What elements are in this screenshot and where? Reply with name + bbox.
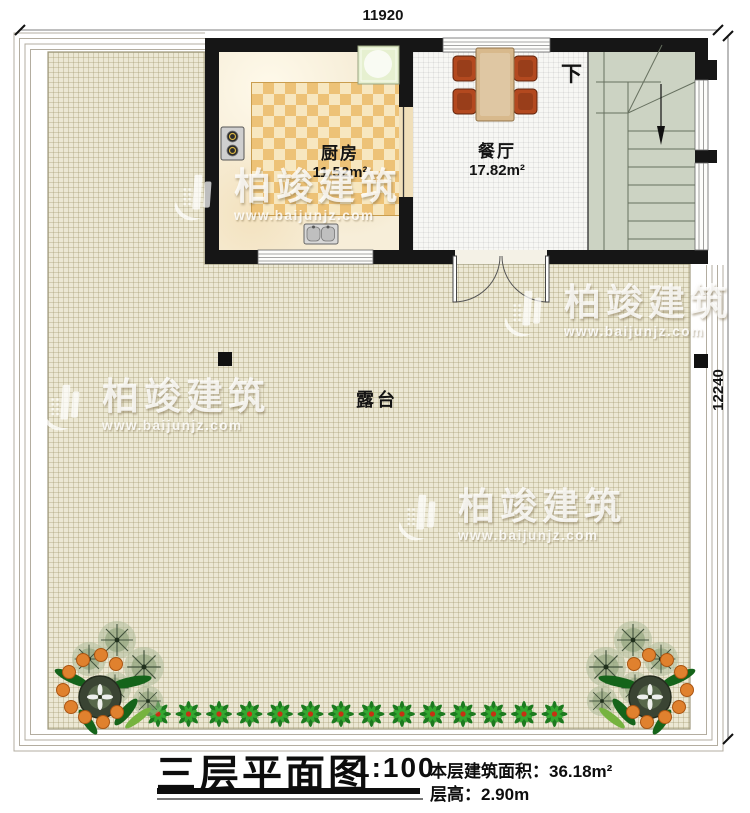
corner-shrub-right xyxy=(586,621,697,737)
stairs-direction-label: 下 xyxy=(561,58,582,88)
window-stair-east-upper xyxy=(695,80,708,150)
floor-height-value: 2.90m xyxy=(481,785,529,804)
floor-area-row: 本层建筑面积：36.18m² xyxy=(430,760,612,783)
stairs-down-arrow xyxy=(657,84,665,145)
drawing-scale: 1:100 xyxy=(354,752,436,784)
sink xyxy=(304,224,338,244)
column-left xyxy=(218,352,232,366)
stove xyxy=(221,127,244,160)
corner-shrub-left xyxy=(53,621,164,737)
floor-area-label: 本层建筑面积： xyxy=(430,762,549,781)
dining-table-set xyxy=(453,48,537,121)
window-stair-east-lower xyxy=(695,163,708,250)
title-underline-thick xyxy=(157,788,420,794)
plant-row xyxy=(145,701,568,727)
title-info: 本层建筑面积：36.18m² 层高：2.90m xyxy=(430,760,612,806)
terrace-name: 露台 xyxy=(327,386,427,412)
kitchen-name: 厨房 xyxy=(265,143,415,164)
stairs xyxy=(588,45,695,250)
kitchen-label: 厨房 11.52m² xyxy=(265,143,415,183)
floor-area-value: 36.18m² xyxy=(549,762,612,781)
column-right xyxy=(694,354,708,368)
floor-height-row: 层高：2.90m xyxy=(430,783,612,806)
kitchen-area: 11.52m² xyxy=(265,164,415,183)
refrigerator xyxy=(358,46,399,84)
dining-area: 17.82m² xyxy=(422,162,572,181)
dining-name: 餐厅 xyxy=(422,141,572,162)
window-kitchen-south xyxy=(258,250,373,264)
floorplan-page: 11920 12240 厨房 11.52m² 餐厅 17.82m² 下 露台 xyxy=(0,0,750,813)
title-underline-thin xyxy=(157,798,423,800)
dining-label: 餐厅 17.82m² xyxy=(422,141,572,181)
french-door xyxy=(453,250,549,302)
dimension-top-value: 11920 xyxy=(340,7,426,24)
floor-height-label: 层高： xyxy=(430,785,481,804)
dimension-right-value: 12240 xyxy=(710,349,726,431)
